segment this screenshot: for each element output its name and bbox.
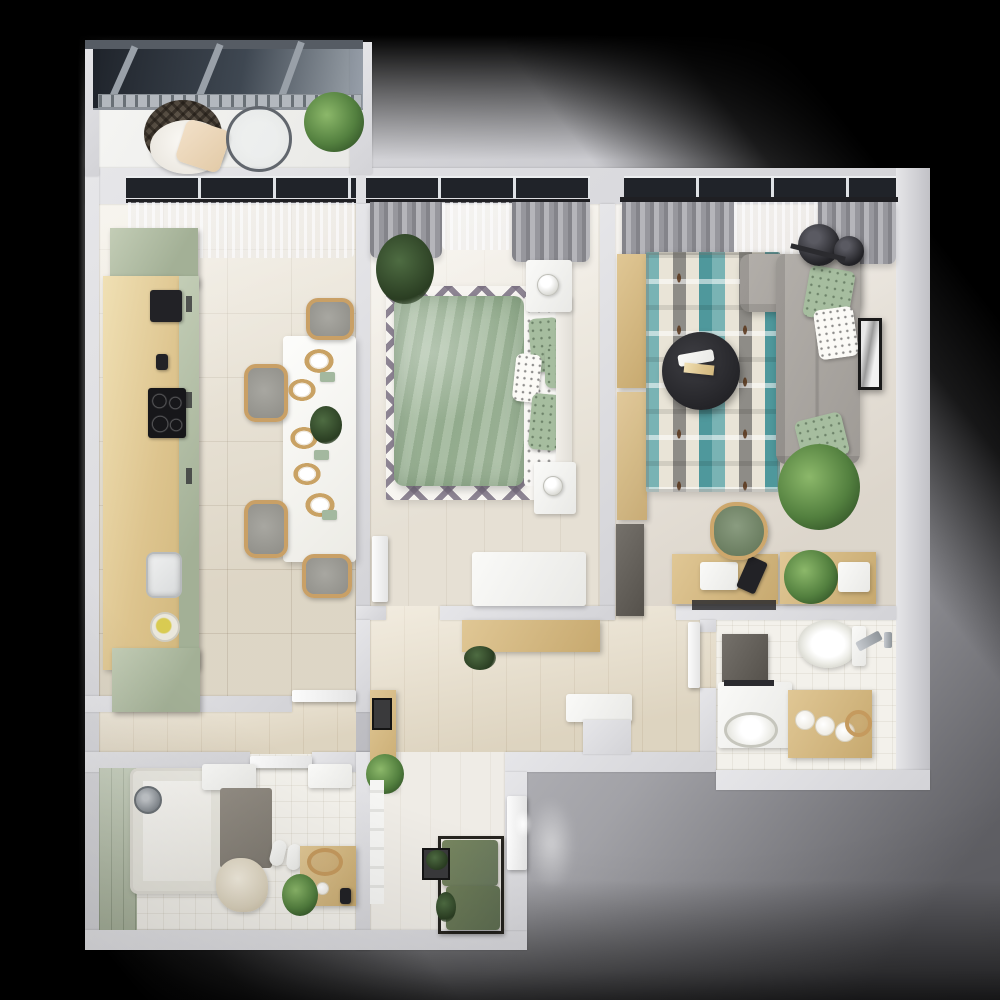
bed-duvet bbox=[394, 296, 524, 486]
cabinet-handle-2 bbox=[186, 392, 192, 408]
bath-bottle bbox=[340, 888, 351, 904]
entry-plant bbox=[436, 892, 456, 922]
cabinet-handle-3 bbox=[186, 468, 192, 484]
toilet bbox=[798, 620, 858, 668]
kitchen-bedroom-wall bbox=[356, 204, 370, 620]
bench-basket bbox=[307, 848, 343, 876]
dining-chair-west-2 bbox=[244, 500, 288, 558]
wc-door-leaf bbox=[688, 622, 700, 688]
bath-vanity-a bbox=[202, 764, 256, 790]
towel-roll-1 bbox=[795, 710, 815, 730]
bedroom-curtain-right bbox=[512, 202, 590, 262]
living-wardrobe-a bbox=[617, 254, 647, 388]
napkin-2 bbox=[314, 450, 329, 460]
fruit-bowl bbox=[150, 612, 180, 642]
bedroom-dresser bbox=[472, 552, 586, 606]
kitchen-jar bbox=[156, 354, 168, 370]
dining-chair-north bbox=[306, 298, 354, 340]
laptop bbox=[700, 562, 738, 590]
rack-basket bbox=[845, 710, 872, 737]
right-wall bbox=[896, 168, 930, 790]
kitchen-window bbox=[126, 176, 356, 198]
living-wardrobe-b bbox=[617, 392, 647, 520]
entry-bench-cushion-1 bbox=[442, 840, 498, 886]
sofa-pillow-diamond bbox=[813, 305, 860, 360]
floor-plan-render bbox=[0, 0, 1000, 1000]
wc-wall-panel bbox=[722, 634, 768, 682]
bedroom-living-wall bbox=[600, 204, 615, 620]
bath-mat bbox=[220, 788, 272, 868]
hall-wall-stub bbox=[583, 720, 631, 754]
left-wall bbox=[85, 168, 99, 950]
bed-headboard bbox=[556, 296, 572, 486]
place-setting-1 bbox=[303, 348, 335, 374]
napkin-3 bbox=[322, 510, 337, 520]
kitchen-lower-cabinet bbox=[112, 648, 200, 712]
door-light-spill bbox=[527, 798, 575, 890]
balcony-plant bbox=[304, 92, 364, 152]
wc-west-wall-north bbox=[700, 620, 716, 632]
cabinet-handle-1 bbox=[186, 296, 192, 312]
bath-plant bbox=[282, 874, 318, 916]
roof-frame-bar bbox=[85, 40, 363, 49]
bedroom-sheer-curtain bbox=[442, 202, 512, 250]
kitchen-sink bbox=[146, 552, 182, 598]
entry-table-plant bbox=[426, 850, 448, 870]
bathroom-door-leaf bbox=[250, 756, 312, 768]
bedroom-window bbox=[366, 176, 590, 198]
laundry-basket bbox=[216, 858, 268, 912]
place-setting-2 bbox=[287, 378, 317, 402]
bedroom-south-wall-east bbox=[440, 606, 615, 620]
table-lamp-north bbox=[537, 274, 559, 296]
kitchen-door-leaf bbox=[292, 690, 356, 702]
living-plant bbox=[778, 444, 860, 530]
dining-chair-west-1 bbox=[244, 364, 288, 422]
kitchen-counter bbox=[103, 276, 179, 670]
hall-cabinet-plant bbox=[464, 646, 496, 670]
desk-chair bbox=[710, 502, 768, 560]
hall-picture-frame bbox=[372, 698, 392, 730]
wall-art-frame bbox=[858, 318, 882, 390]
floor-lamp-shade-large bbox=[798, 224, 840, 266]
bedroom-south-wall-west bbox=[356, 606, 386, 620]
bath-vanity-b bbox=[308, 764, 352, 788]
coffee-machine bbox=[150, 290, 182, 322]
bedroom-door-leaf bbox=[372, 536, 388, 602]
cooktop bbox=[148, 388, 186, 438]
place-setting-4 bbox=[292, 462, 322, 486]
wc-south-wall bbox=[716, 770, 930, 790]
hall-ledge bbox=[566, 694, 632, 722]
floor-lamp-shade-small bbox=[834, 236, 864, 266]
entry-wall-panel bbox=[370, 780, 384, 904]
wc-basin bbox=[724, 712, 778, 748]
towel-roll-2 bbox=[815, 716, 835, 736]
entry-west-wall-north bbox=[356, 620, 370, 712]
balcony-table bbox=[226, 106, 292, 172]
table-lamp-south bbox=[543, 476, 563, 496]
table-plant bbox=[310, 406, 342, 444]
printer bbox=[838, 562, 870, 592]
bedroom-plant bbox=[376, 234, 434, 304]
dining-chair-south bbox=[302, 554, 352, 598]
hall-south-wall bbox=[505, 752, 716, 772]
desk-mat bbox=[692, 600, 776, 610]
living-window bbox=[624, 176, 896, 198]
shower-head bbox=[134, 786, 162, 814]
wc-mirror-edge bbox=[724, 680, 774, 686]
napkin-1 bbox=[320, 372, 335, 382]
sideboard-plant bbox=[784, 550, 838, 604]
wc-paper-holder bbox=[884, 632, 892, 648]
tv-unit bbox=[616, 524, 644, 616]
